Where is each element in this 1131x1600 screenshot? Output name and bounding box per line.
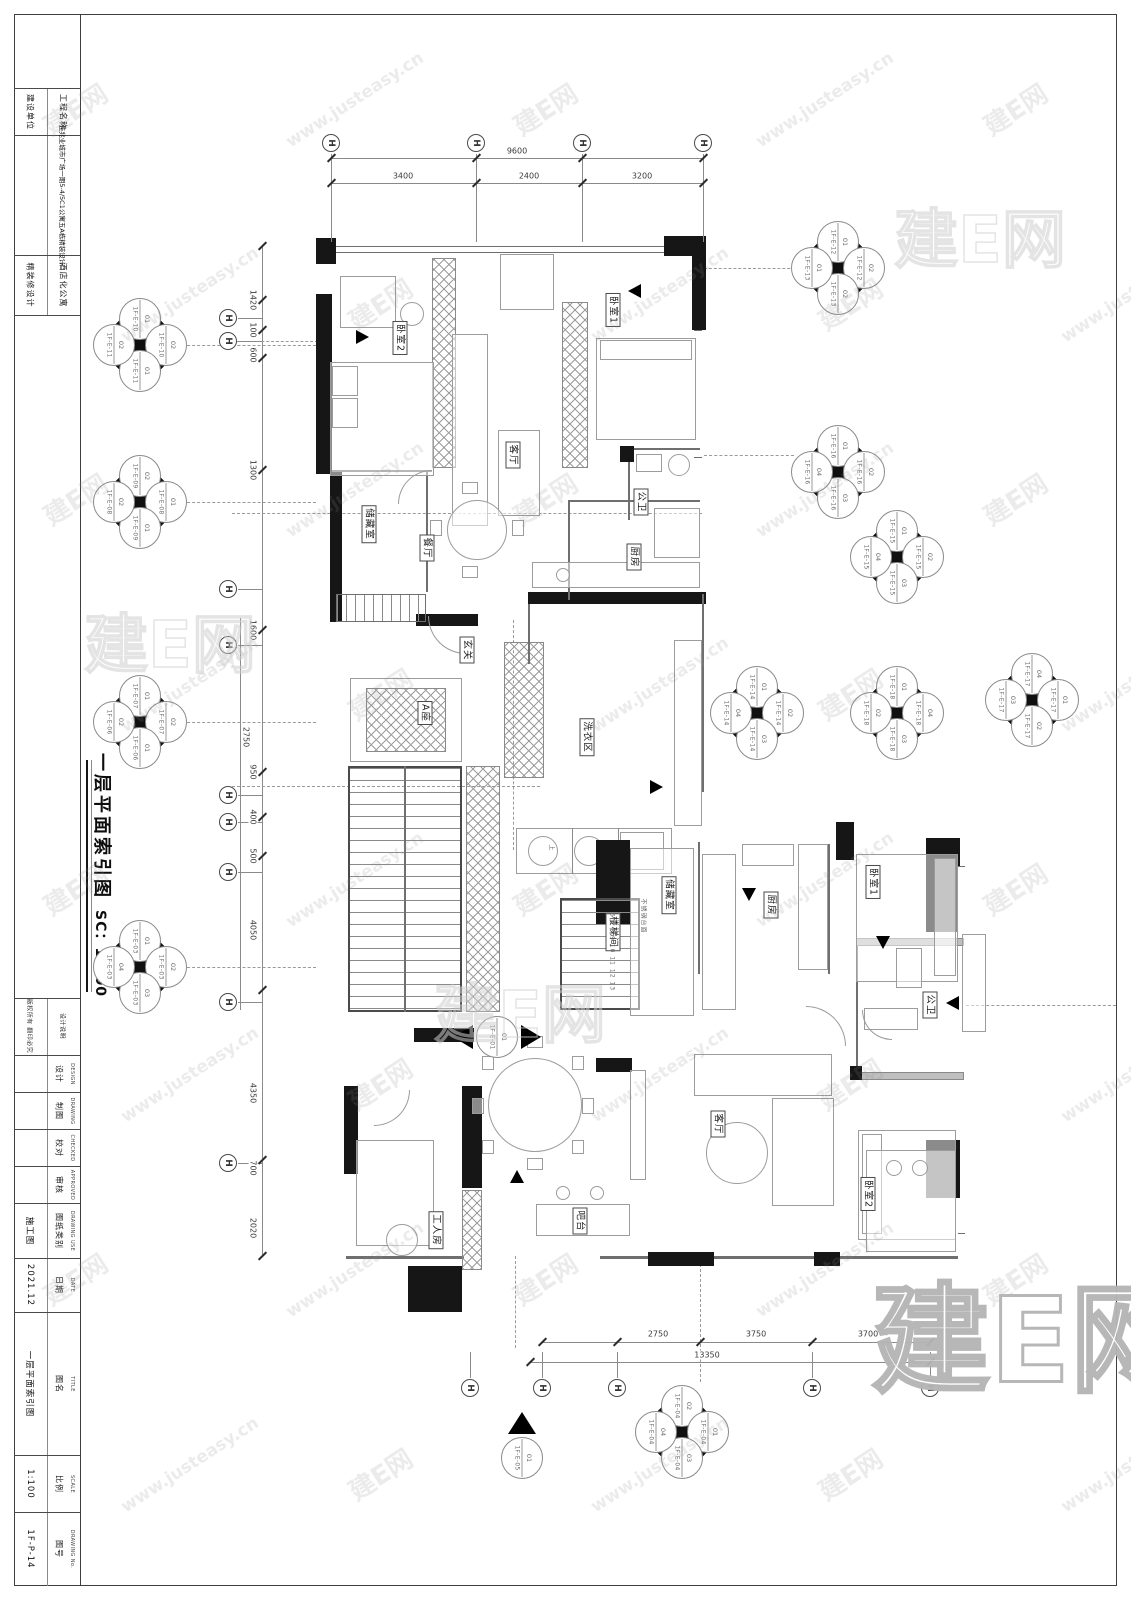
elevation-sheet-code: 1F-E-01 — [489, 1024, 496, 1049]
arrow-left-icon — [628, 284, 641, 298]
wall-line — [404, 766, 406, 1012]
furniture-outline — [702, 854, 736, 1010]
elevation-marker-divider — [522, 1439, 523, 1477]
dim-segment-left: 700 — [249, 1159, 258, 1176]
elevation-marker-divider — [114, 948, 115, 986]
elevation-marker-divider — [838, 223, 839, 261]
elevation-marker-divider — [731, 694, 732, 732]
furniture-circle — [912, 1160, 928, 1176]
elevation-marker-divider — [923, 538, 924, 576]
elevation-view-number: 02 — [169, 718, 177, 726]
grid-leader — [238, 341, 262, 342]
elevation-view-number: 04 — [659, 1428, 667, 1436]
elevation-marker-wedge — [453, 1025, 473, 1049]
dashed-line — [704, 268, 800, 269]
grid-bubble-label: H — [223, 998, 233, 1006]
wall-line — [528, 604, 530, 664]
dim-segment-top: 2400 — [518, 172, 540, 181]
elevation-sheet-code: 1F-E-17 — [1050, 687, 1057, 712]
grid-bubble-label: H — [807, 1384, 817, 1392]
grid-leader — [812, 1352, 813, 1378]
elevation-view-number: 01 — [143, 524, 151, 532]
elevation-view-number: 02 — [117, 718, 125, 726]
grid-leader — [238, 872, 262, 873]
elevation-sheet-code: 1F-E-11 — [132, 358, 139, 383]
elevation-view-number: 02 — [874, 709, 882, 717]
elevation-marker-divider — [897, 720, 898, 758]
elevation-marker-divider — [897, 512, 898, 550]
door-swing — [862, 1010, 892, 1040]
furniture-outline — [462, 482, 478, 494]
elevation-view-number: 03 — [760, 735, 768, 743]
furniture-outline — [512, 520, 524, 536]
arrow-right-icon — [356, 330, 369, 344]
elevation-sheet-code: 1F-E-13 — [804, 255, 811, 280]
elevation-marker-divider — [1032, 707, 1033, 745]
grid-leader — [476, 154, 477, 242]
grid-bubble-label: H — [577, 139, 587, 147]
elevation-marker-divider — [838, 275, 839, 313]
arrow-down-icon — [876, 936, 890, 949]
wall-segment — [86, 760, 88, 992]
room-label: 厨房 — [764, 891, 779, 918]
wall-segment — [814, 1252, 840, 1266]
plan-note-text: 6 7 8 9 10 11 12 13 — [609, 913, 616, 991]
elevation-marker-divider — [897, 668, 898, 706]
elevation-marker-divider — [871, 538, 872, 576]
wall-segment — [596, 1058, 632, 1072]
elevation-sheet-code: 1F-E-08 — [158, 489, 165, 514]
elevation-view-number: 02 — [926, 553, 934, 561]
elevation-marker-divider — [166, 483, 167, 521]
wall-segment — [850, 1066, 862, 1080]
grid-bubble-label: H — [223, 585, 233, 593]
dim-total-top: 9600 — [506, 147, 528, 156]
elevation-marker-divider — [140, 974, 141, 1012]
elevation-sheet-code: 1F-E-09 — [132, 463, 139, 488]
furniture-outline — [572, 1140, 584, 1154]
elevation-view-number: 01 — [711, 1428, 719, 1436]
grid-bubble-label: H — [223, 641, 233, 649]
dim-segment-top: 3400 — [392, 172, 414, 181]
elevation-view-number: 03 — [841, 494, 849, 502]
dim-segment-left: 2750 — [242, 726, 251, 748]
door-swing — [806, 1006, 846, 1046]
elevation-sheet-code: 1F-E-04 — [674, 1393, 681, 1418]
elevation-marker-divider — [114, 483, 115, 521]
grid-bubble-label: H — [223, 314, 233, 322]
furniture-outline — [340, 276, 396, 328]
wall-segment — [692, 238, 706, 330]
dim-segment-left: 1420 — [249, 289, 258, 311]
elevation-view-number: 01 — [1061, 696, 1069, 704]
elevation-sheet-code: 1F-E-16 — [830, 433, 837, 458]
elevation-view-number: 01 — [143, 367, 151, 375]
plan-note-text: 上 — [548, 844, 557, 851]
elevation-view-number: 04 — [815, 468, 823, 476]
elevation-marker-divider — [140, 922, 141, 960]
elevation-sheet-code: 1F-E-18 — [863, 700, 870, 725]
hatch-wall — [562, 302, 588, 468]
elevation-marker-divider — [1006, 681, 1007, 719]
elevation-marker-divider — [1058, 681, 1059, 719]
elevation-view-number: 01 — [900, 683, 908, 691]
elevation-sheet-code: 1F-E-12 — [830, 229, 837, 254]
plan-title-text: 一层平面索引图 — [91, 753, 112, 900]
wall-line — [702, 594, 704, 792]
elevation-view-number: 02 — [1035, 722, 1043, 730]
dim-segment-left: 4050 — [249, 919, 258, 941]
furniture-outline — [674, 640, 702, 826]
elevation-marker-divider — [656, 1413, 657, 1451]
dim-segment-left: 400 — [249, 808, 258, 825]
room-label: 公卫 — [923, 991, 938, 1018]
elevation-sheet-code: 1F-E-16 — [830, 485, 837, 510]
grid-leader — [238, 318, 262, 319]
elevation-marker-divider — [1032, 655, 1033, 693]
elevation-marker-divider — [166, 703, 167, 741]
elevation-view-number: 01 — [143, 744, 151, 752]
elevation-sheet-code: 1F-E-03 — [158, 954, 165, 979]
elevation-view-number: 04 — [734, 709, 742, 717]
furniture-circle — [886, 1160, 902, 1176]
elevation-view-number: 01 — [815, 264, 823, 272]
elevation-sheet-code: 1F-E-10 — [158, 332, 165, 357]
elevation-view-number: 02 — [143, 472, 151, 480]
dim-segment-bottom: 3700 — [857, 1330, 879, 1339]
elevation-sheet-code: 1F-E-13 — [830, 281, 837, 306]
furniture-outline — [482, 1140, 494, 1154]
elevation-sheet-code: 1F-E-14 — [749, 674, 756, 699]
grid-leader — [238, 1002, 262, 1003]
elevation-view-number: 04 — [117, 963, 125, 971]
staircase — [560, 898, 640, 1010]
furniture-outline — [500, 254, 554, 310]
dim-segment-left: 1300 — [249, 459, 258, 481]
grid-bubble-label: H — [223, 818, 233, 826]
elevation-view-number: 03 — [1009, 696, 1017, 704]
dim-segment-left: 1600 — [249, 619, 258, 641]
grid-leader — [238, 645, 262, 646]
elevation-sheet-code: 1F-E-06 — [106, 709, 113, 734]
line-horizontal — [542, 1342, 930, 1343]
elevation-marker-divider — [897, 564, 898, 602]
elevation-sheet-code: 1F-E-07 — [158, 709, 165, 734]
wall-segment — [316, 238, 336, 264]
elevation-marker-wedge — [508, 1412, 536, 1434]
line-horizontal — [331, 158, 703, 159]
wall-line — [346, 1256, 464, 1259]
dashed-line — [515, 1256, 516, 1348]
elevation-marker-divider — [140, 352, 141, 390]
grid-bubble-label: H — [465, 1384, 475, 1392]
elevation-sheet-code: 1F-E-04 — [700, 1419, 707, 1444]
furniture-outline — [772, 1098, 834, 1206]
window-wall — [322, 246, 702, 253]
elevation-view-number: 01 — [525, 1454, 533, 1462]
furniture-circle — [386, 1224, 418, 1256]
room-label: 储藏室 — [662, 876, 677, 914]
dim-tick — [926, 1337, 935, 1346]
furniture-circle — [556, 568, 570, 582]
elevation-marker-divider — [708, 1413, 709, 1451]
elevation-sheet-code: 1F-E-17 — [1024, 713, 1031, 738]
grid-leader — [542, 1352, 543, 1378]
room-label: 卧室2 — [393, 321, 408, 355]
wall-segment — [528, 592, 706, 604]
elevation-view-number: 02 — [685, 1402, 693, 1410]
elevation-marker-divider — [682, 1439, 683, 1477]
elevation-marker-divider — [812, 453, 813, 491]
wall-segment — [836, 822, 854, 860]
furniture-outline — [482, 1056, 494, 1070]
furniture-outline — [462, 566, 478, 578]
grid-bubble-label: H — [223, 337, 233, 345]
furniture-outline — [866, 1150, 956, 1252]
dim-total-bottom: 13350 — [693, 1351, 720, 1360]
elevation-sheet-code: 1F-E-14 — [723, 700, 730, 725]
elevation-view-number: 03 — [685, 1454, 693, 1462]
elevation-marker-divider — [497, 1018, 498, 1056]
dim-tick — [258, 1251, 267, 1260]
elevation-view-number: 01 — [500, 1033, 508, 1041]
room-label: 吧台 — [573, 1207, 588, 1234]
line-vertical — [572, 828, 573, 874]
grid-bubble-label: H — [326, 139, 336, 147]
elevation-sheet-code: 1F-E-17 — [998, 687, 1005, 712]
elevation-sheet-code: 1F-E-06 — [132, 735, 139, 760]
room-label: 卧室2 — [861, 1177, 876, 1211]
hatch-wall — [366, 688, 446, 752]
floor-plan: 一层平面索引图SC：1:100 — [0, 0, 1131, 1600]
elevation-view-number: 04 — [1035, 670, 1043, 678]
furniture-outline — [332, 366, 358, 396]
grid-bubble-label: H — [698, 139, 708, 147]
room-label: 工人房 — [429, 1211, 444, 1249]
elevation-sheet-code: 1F-E-12 — [856, 255, 863, 280]
elevation-view-number: 01 — [143, 315, 151, 323]
elevation-sheet-code: 1F-E-16 — [804, 459, 811, 484]
elevation-marker-divider — [757, 668, 758, 706]
grid-leader — [582, 154, 583, 242]
furniture-outline — [934, 858, 956, 976]
grid-bubble-label: H — [223, 791, 233, 799]
furniture-circle — [668, 454, 690, 476]
elevation-sheet-code: 1F-E-03 — [106, 954, 113, 979]
elevation-sheet-code: 1F-E-18 — [889, 674, 896, 699]
hatch-wall — [466, 766, 500, 1012]
elevation-sheet-code: 1F-E-04 — [674, 1445, 681, 1470]
elevation-sheet-code: 1F-E-15 — [915, 544, 922, 569]
dim-segment-top: 3200 — [631, 172, 653, 181]
room-label: 餐厅 — [420, 534, 435, 561]
furniture-outline — [527, 1158, 543, 1170]
elevation-marker-divider — [140, 677, 141, 715]
elevation-marker-divider — [140, 729, 141, 767]
furniture-outline — [582, 1098, 594, 1114]
dim-segment-left: 600 — [249, 346, 258, 363]
elevation-sheet-code: 1F-E-09 — [132, 515, 139, 540]
dim-segment-bottom: 2750 — [647, 1330, 669, 1339]
elevation-marker-divider — [923, 694, 924, 732]
furniture-outline — [572, 1056, 584, 1070]
elevation-sheet-code: 1F-E-15 — [863, 544, 870, 569]
wall-line — [828, 844, 830, 974]
line-horizontal — [331, 183, 703, 184]
elevation-marker-divider — [864, 249, 865, 287]
furniture-outline — [896, 948, 922, 988]
furniture-outline — [742, 844, 794, 866]
line-vertical — [262, 246, 263, 1256]
elevation-marker-divider — [114, 326, 115, 364]
elevation-sheet-code: 1F-E-03 — [132, 980, 139, 1005]
room-label: 厨房 — [627, 543, 642, 570]
elevation-marker-divider — [838, 479, 839, 517]
line-vertical — [240, 618, 241, 1010]
elevation-sheet-code: 1F-E-04 — [648, 1419, 655, 1444]
furniture-outline — [694, 1054, 832, 1096]
elevation-view-number: 04 — [926, 709, 934, 717]
grid-bubble-label: H — [537, 1384, 547, 1392]
room-label: 储藏室 — [362, 505, 377, 543]
elevation-sheet-code: 1F-E-17 — [1024, 661, 1031, 686]
dim-segment-left: 4350 — [249, 1082, 258, 1104]
room-label: 洗衣区 — [580, 718, 595, 756]
elevation-marker-divider — [783, 694, 784, 732]
elevation-marker-divider — [682, 1387, 683, 1425]
elevation-sheet-code: 1F-E-10 — [132, 306, 139, 331]
grid-leader — [331, 154, 332, 242]
elevation-view-number: 01 — [143, 937, 151, 945]
elevation-view-number: 02 — [169, 963, 177, 971]
plan-note-text: 不锈钢台面 — [640, 898, 649, 933]
drawing-sheet: 建E网www.justeasy.cn建E网www.justeasy.cn建E网w… — [0, 0, 1131, 1600]
elevation-view-number: 01 — [169, 498, 177, 506]
elevation-view-number: 04 — [874, 553, 882, 561]
elevation-marker-wedge — [521, 1025, 541, 1049]
elevation-sheet-code: 1F-E-16 — [856, 459, 863, 484]
elevation-view-number: 02 — [117, 498, 125, 506]
grid-leader — [703, 154, 704, 242]
furniture-outline — [332, 398, 358, 428]
elevation-marker-divider — [166, 326, 167, 364]
dashed-line — [182, 722, 316, 723]
furniture-outline — [636, 454, 662, 472]
furniture-circle — [488, 1058, 582, 1152]
elevation-sheet-code: 1F-E-14 — [775, 700, 782, 725]
grid-leader — [238, 795, 262, 796]
furniture-circle — [590, 1186, 604, 1200]
dim-segment-left: 100 — [249, 321, 258, 338]
wall-segment — [620, 446, 634, 462]
arrow-right-icon — [650, 780, 663, 794]
grid-bubble-label: H — [223, 868, 233, 876]
elevation-marker-divider — [140, 509, 141, 547]
room-label: 卧室1 — [866, 865, 881, 899]
elevation-sheet-code: 1F-E-18 — [915, 700, 922, 725]
line-vertical — [91, 760, 92, 992]
wall-segment — [648, 1252, 714, 1266]
elevation-marker-divider — [114, 703, 115, 741]
elevation-view-number: 02 — [117, 341, 125, 349]
dashed-line — [966, 1005, 1116, 1006]
room-label: 卧室1 — [606, 293, 621, 327]
elevation-sheet-code: 1F-E-05 — [514, 1445, 521, 1470]
room-label: 客厅 — [711, 1110, 726, 1137]
grid-bubble-label: H — [925, 1384, 935, 1392]
elevation-view-number: 01 — [841, 442, 849, 450]
elevation-marker-divider — [864, 453, 865, 491]
elevation-marker-divider — [140, 457, 141, 495]
dim-segment-left: 950 — [249, 763, 258, 780]
room-label: 玄关 — [460, 636, 475, 663]
furniture-outline — [962, 934, 986, 1032]
door-swing — [374, 1090, 410, 1126]
grid-leader — [930, 1352, 931, 1378]
dashed-line — [182, 502, 316, 503]
arrow-up-icon — [510, 1170, 524, 1183]
wall-light — [856, 1072, 964, 1080]
dashed-line — [704, 455, 794, 456]
arrow-left-icon — [946, 996, 959, 1010]
dim-segment-left: 500 — [249, 847, 258, 864]
furniture-outline — [798, 844, 828, 970]
furniture-circle — [447, 500, 507, 560]
room-label: A座 — [418, 701, 433, 725]
hatch-wall — [462, 1190, 482, 1270]
furniture-outline — [472, 1098, 484, 1114]
elevation-marker-divider — [812, 249, 813, 287]
elevation-sheet-code: 1F-E-03 — [132, 928, 139, 953]
entry-steps — [336, 594, 426, 622]
elevation-sheet-code: 1F-E-18 — [889, 726, 896, 751]
elevation-view-number: 01 — [900, 527, 908, 535]
elevation-view-number: 01 — [143, 692, 151, 700]
hatch-wall — [504, 642, 544, 778]
elevation-sheet-code: 1F-E-11 — [106, 332, 113, 357]
elevation-view-number: 03 — [900, 735, 908, 743]
dashed-line — [182, 967, 316, 968]
elevation-view-number: 01 — [841, 238, 849, 246]
elevation-sheet-code: 1F-E-07 — [132, 683, 139, 708]
elevation-view-number: 03 — [900, 579, 908, 587]
elevation-sheet-code: 1F-E-08 — [106, 489, 113, 514]
elevation-view-number: 02 — [841, 290, 849, 298]
elevation-view-number: 03 — [143, 989, 151, 997]
dim-segment-left: 2020 — [249, 1217, 258, 1239]
dashed-line — [700, 1264, 701, 1382]
elevation-sheet-code: 1F-E-15 — [889, 570, 896, 595]
furniture-outline — [452, 334, 488, 526]
elevation-marker-divider — [838, 427, 839, 465]
grid-leader — [238, 589, 262, 590]
elevation-view-number: 02 — [169, 341, 177, 349]
elevation-view-number: 02 — [786, 709, 794, 717]
dim-segment-bottom: 3750 — [745, 1330, 767, 1339]
grid-leader — [470, 1352, 471, 1378]
elevation-marker-divider — [871, 694, 872, 732]
elevation-marker-divider — [757, 720, 758, 758]
elevation-sheet-code: 1F-E-14 — [749, 726, 756, 751]
wall-line — [628, 448, 700, 450]
elevation-view-number: 01 — [760, 683, 768, 691]
elevation-marker-divider — [166, 948, 167, 986]
elevation-view-number: 02 — [867, 468, 875, 476]
furniture-outline — [630, 1070, 646, 1180]
wall-segment — [408, 1266, 462, 1312]
grid-bubble-label: H — [223, 1159, 233, 1167]
elevation-sheet-code: 1F-E-15 — [889, 518, 896, 543]
